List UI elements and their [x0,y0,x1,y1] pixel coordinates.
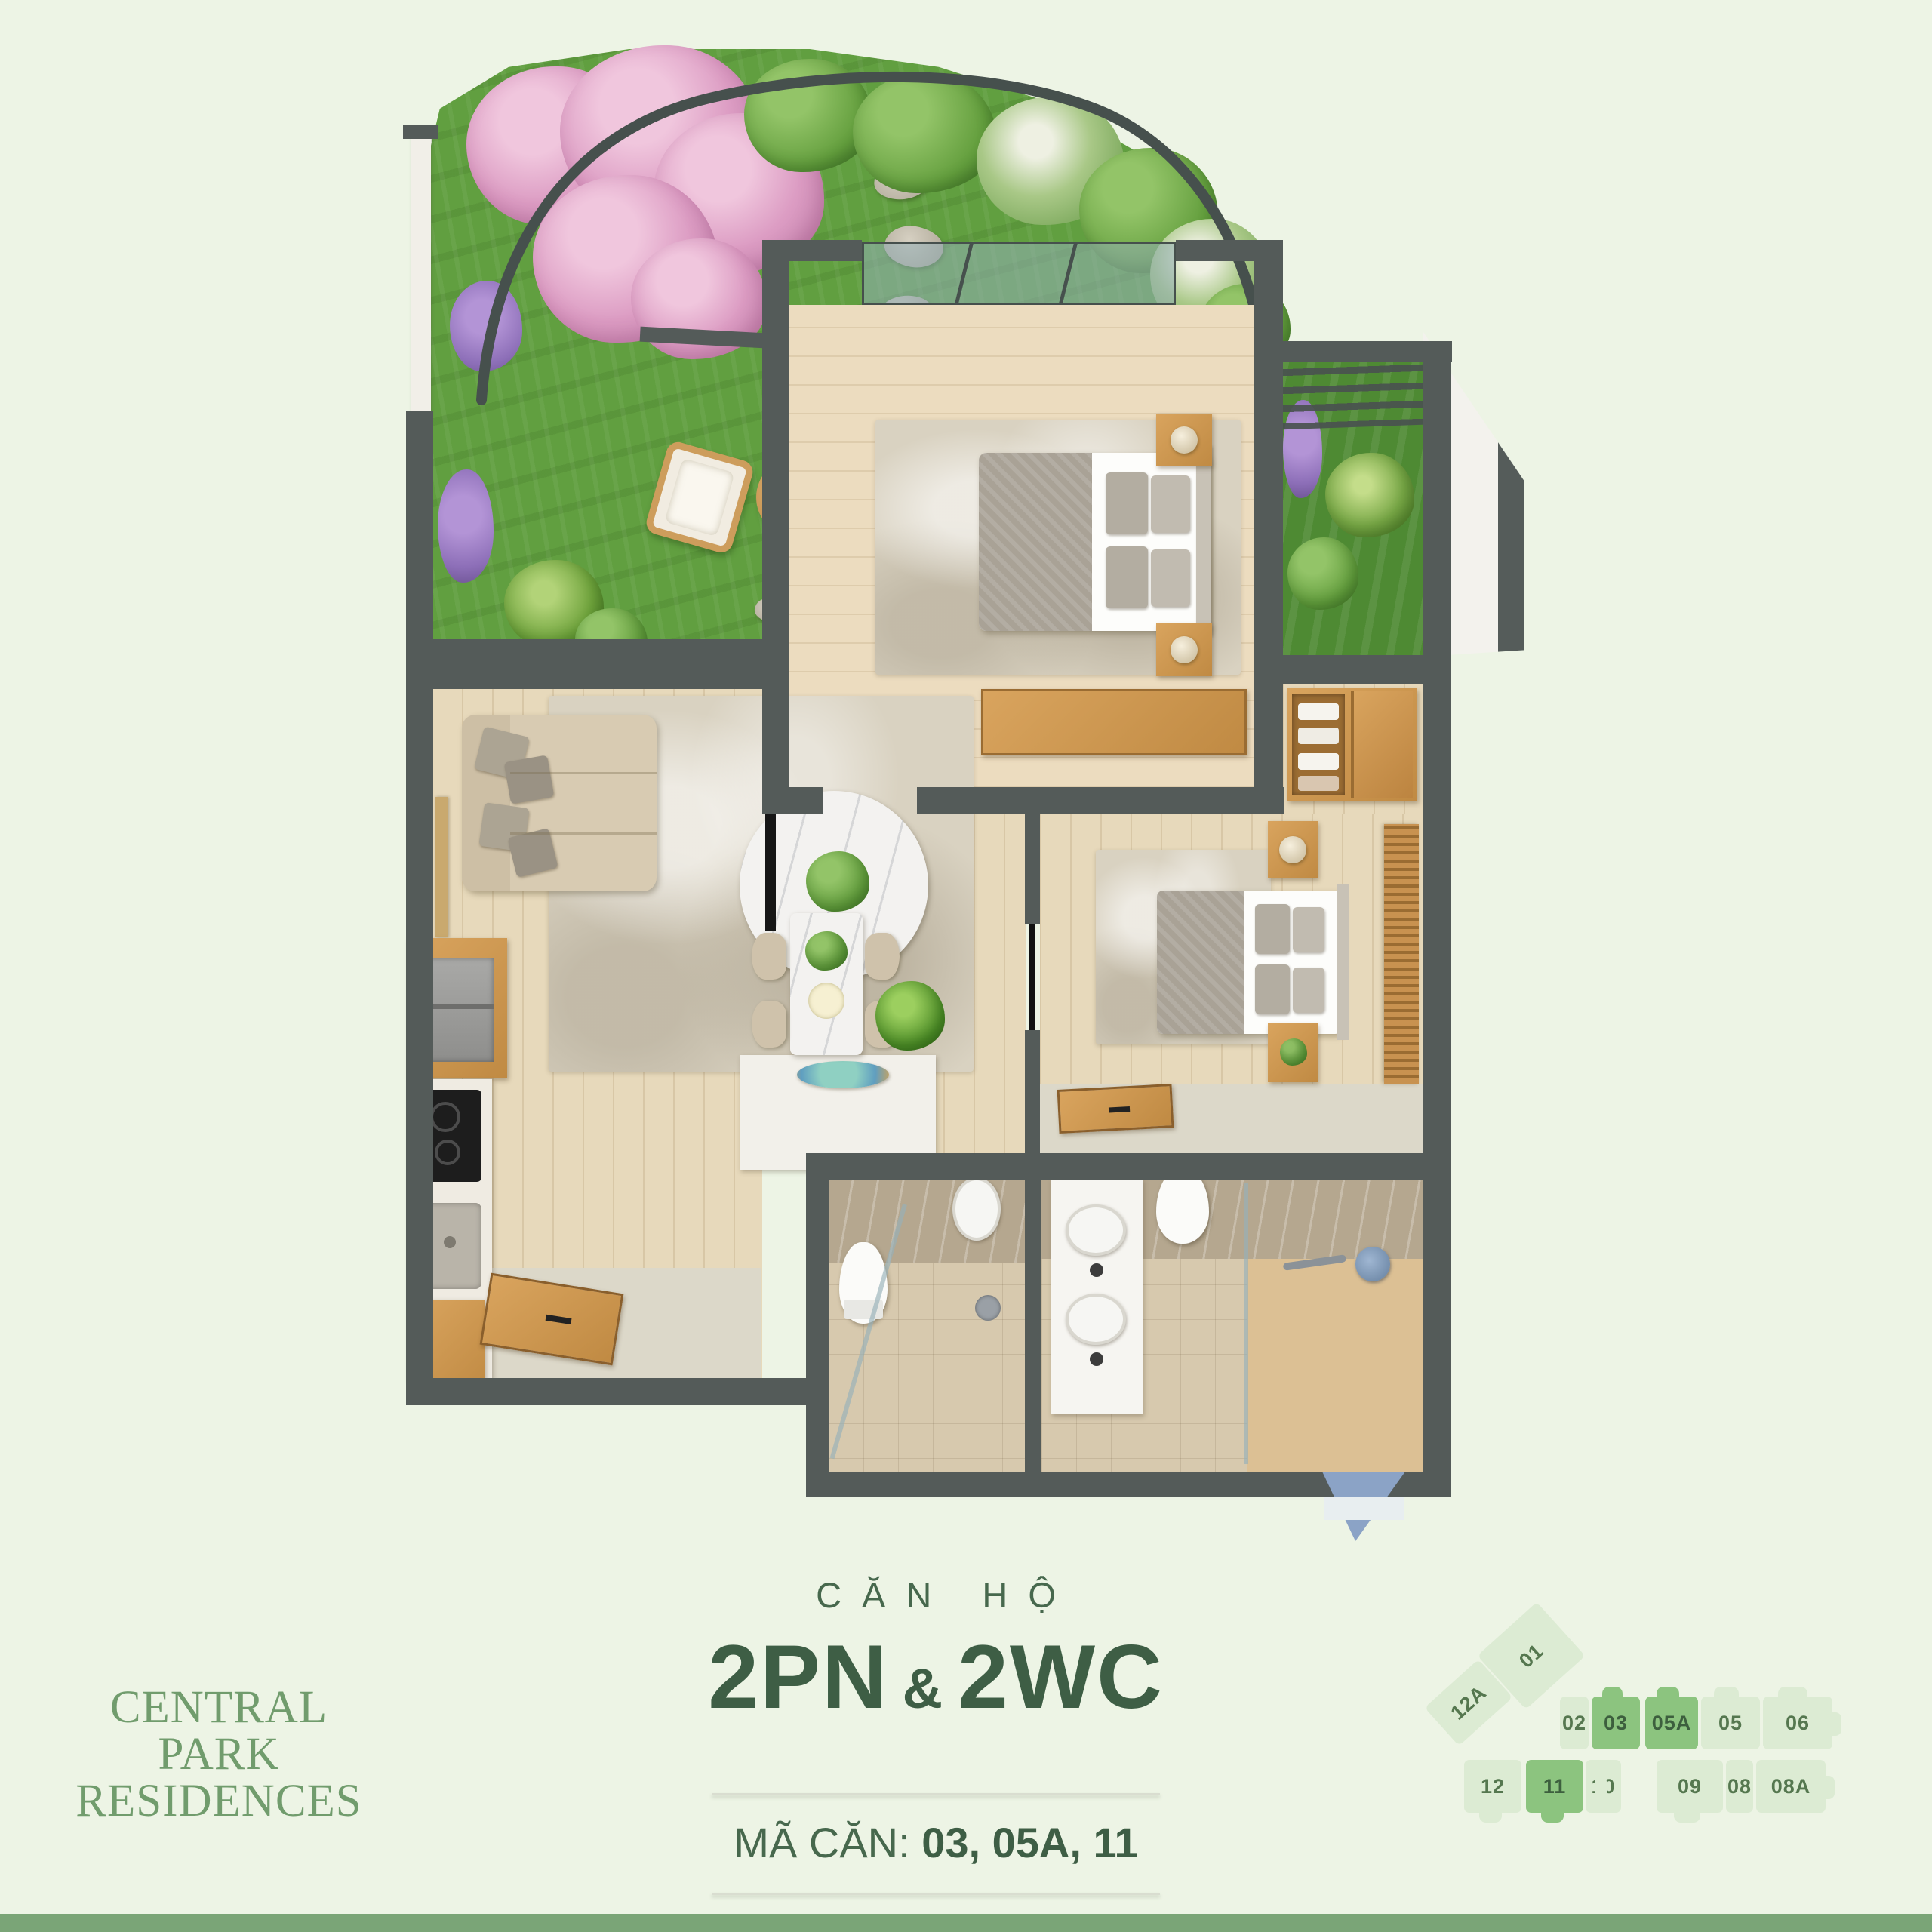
keyplan-unit-02: 02 [1560,1697,1589,1749]
lavender-patch [450,281,522,371]
brand-logo: CENTRAL PARK RESIDENCES [42,1684,396,1825]
floor-plan [0,0,1932,1585]
keyplan-unit-09: 09 [1657,1760,1723,1813]
apartment-kicker: CĂN HỘ [706,1574,1166,1616]
logo-line-1: CENTRAL [42,1684,396,1731]
parapet-cap [403,125,438,139]
wall-bedroom1-right [1254,240,1283,814]
shower1-head [975,1295,1001,1321]
site-key-plan: 01 12A 02 03 05A 05 06 12 11 10 09 08 08… [1411,1607,1879,1857]
dining-table [790,913,863,1055]
wall-left [406,411,433,1405]
entrance-sill [1324,1497,1404,1520]
keyplan-unit-06: 06 [1763,1697,1832,1749]
keyplan-unit-11: 11 [1526,1760,1583,1813]
wall-bedroom2-left-lower [1025,1030,1040,1155]
nightstand [1156,414,1212,466]
bedroom1-headboard [1196,447,1211,637]
footer-accent-bar [0,1914,1932,1932]
bedroom2-door-jamb [1029,924,1035,1030]
wall-bedroom1-bottom-b [917,787,1284,814]
bedroom1-desk [981,689,1247,755]
dining-plant [875,981,945,1051]
apartment-type: 2PN&2WC [706,1628,1166,1754]
decorative-plate [797,1061,889,1088]
shower2-glass [1244,1183,1248,1464]
apartment-type-bedrooms: 2PN [708,1626,888,1727]
garden-bush [744,59,872,172]
wall-bedroom1-top-a [762,240,862,261]
wall-wc1-left [806,1153,829,1497]
bedroom2-headboard [1337,884,1349,1040]
unit-code-values: 03, 05A, 11 [921,1819,1137,1866]
keyplan-unit-08A: 08A [1756,1760,1826,1813]
logo-line-2: PARK [42,1731,396,1778]
ampersand: & [889,1657,958,1720]
bedroom2-slat-panel [1384,824,1419,1084]
keyplan-unit-08: 08 [1726,1760,1753,1813]
sofa [462,715,657,891]
lavender-patch [438,469,494,583]
bathroom2-vanity [1051,1179,1143,1414]
bathroom1-sink [952,1177,1001,1241]
parapet-wall [411,130,431,417]
wall-balcony-bottom [1281,655,1426,684]
wall-wc-top [806,1153,1431,1180]
unit-code-label: MÃ CĂN: [734,1819,909,1866]
keyplan-unit-10: 10 [1586,1760,1621,1813]
divider-bottom [712,1893,1160,1895]
keyplan-unit-12: 12 [1464,1760,1521,1813]
wall-bedroom2-left-upper [1025,800,1040,924]
balcony-bush [1287,537,1358,610]
wall-right [1423,341,1451,1497]
dining-chair [752,1001,786,1048]
bedroom1-bed [979,453,1210,631]
bedroom1-glass-wall [862,241,1176,305]
dining-chair [865,933,900,980]
keyplan-unit-05A: 05A [1645,1697,1698,1749]
dining-chair [752,933,786,980]
bedroom2-sliding-door [1057,1084,1174,1134]
nightstand [1268,821,1318,878]
logo-line-3: RESIDENCES [42,1778,396,1825]
title-block: CĂN HỘ 2PN&2WC MÃ CĂN: 03, 05A, 11 [706,1574,1166,1895]
wall-art [435,797,448,937]
bedroom2-bed [1157,891,1341,1034]
keyplan-unit-05: 05 [1701,1697,1760,1749]
keyplan-unit-03: 03 [1592,1697,1640,1749]
wall-living-top [406,639,788,689]
wall-bedroom1-left [762,240,789,814]
nightstand [1268,1023,1318,1082]
nightstand [1156,623,1212,676]
garden-bush [853,72,996,193]
wall-wc-divider [1025,1153,1041,1497]
wall-bedroom1-top-b [1176,240,1283,261]
wardrobe [1287,688,1417,801]
apartment-type-bathrooms: 2WC [958,1626,1164,1727]
unit-code-line: MÃ CĂN: 03, 05A, 11 [706,1795,1166,1893]
balcony-plant [1325,453,1414,537]
wall-kitchen-bottom [406,1378,808,1405]
wall-bedroom1-bottom-a [762,787,823,814]
shower2-valve [1355,1247,1390,1281]
page: { "page": { "background": "#edf4e5", "fo… [0,0,1932,1932]
